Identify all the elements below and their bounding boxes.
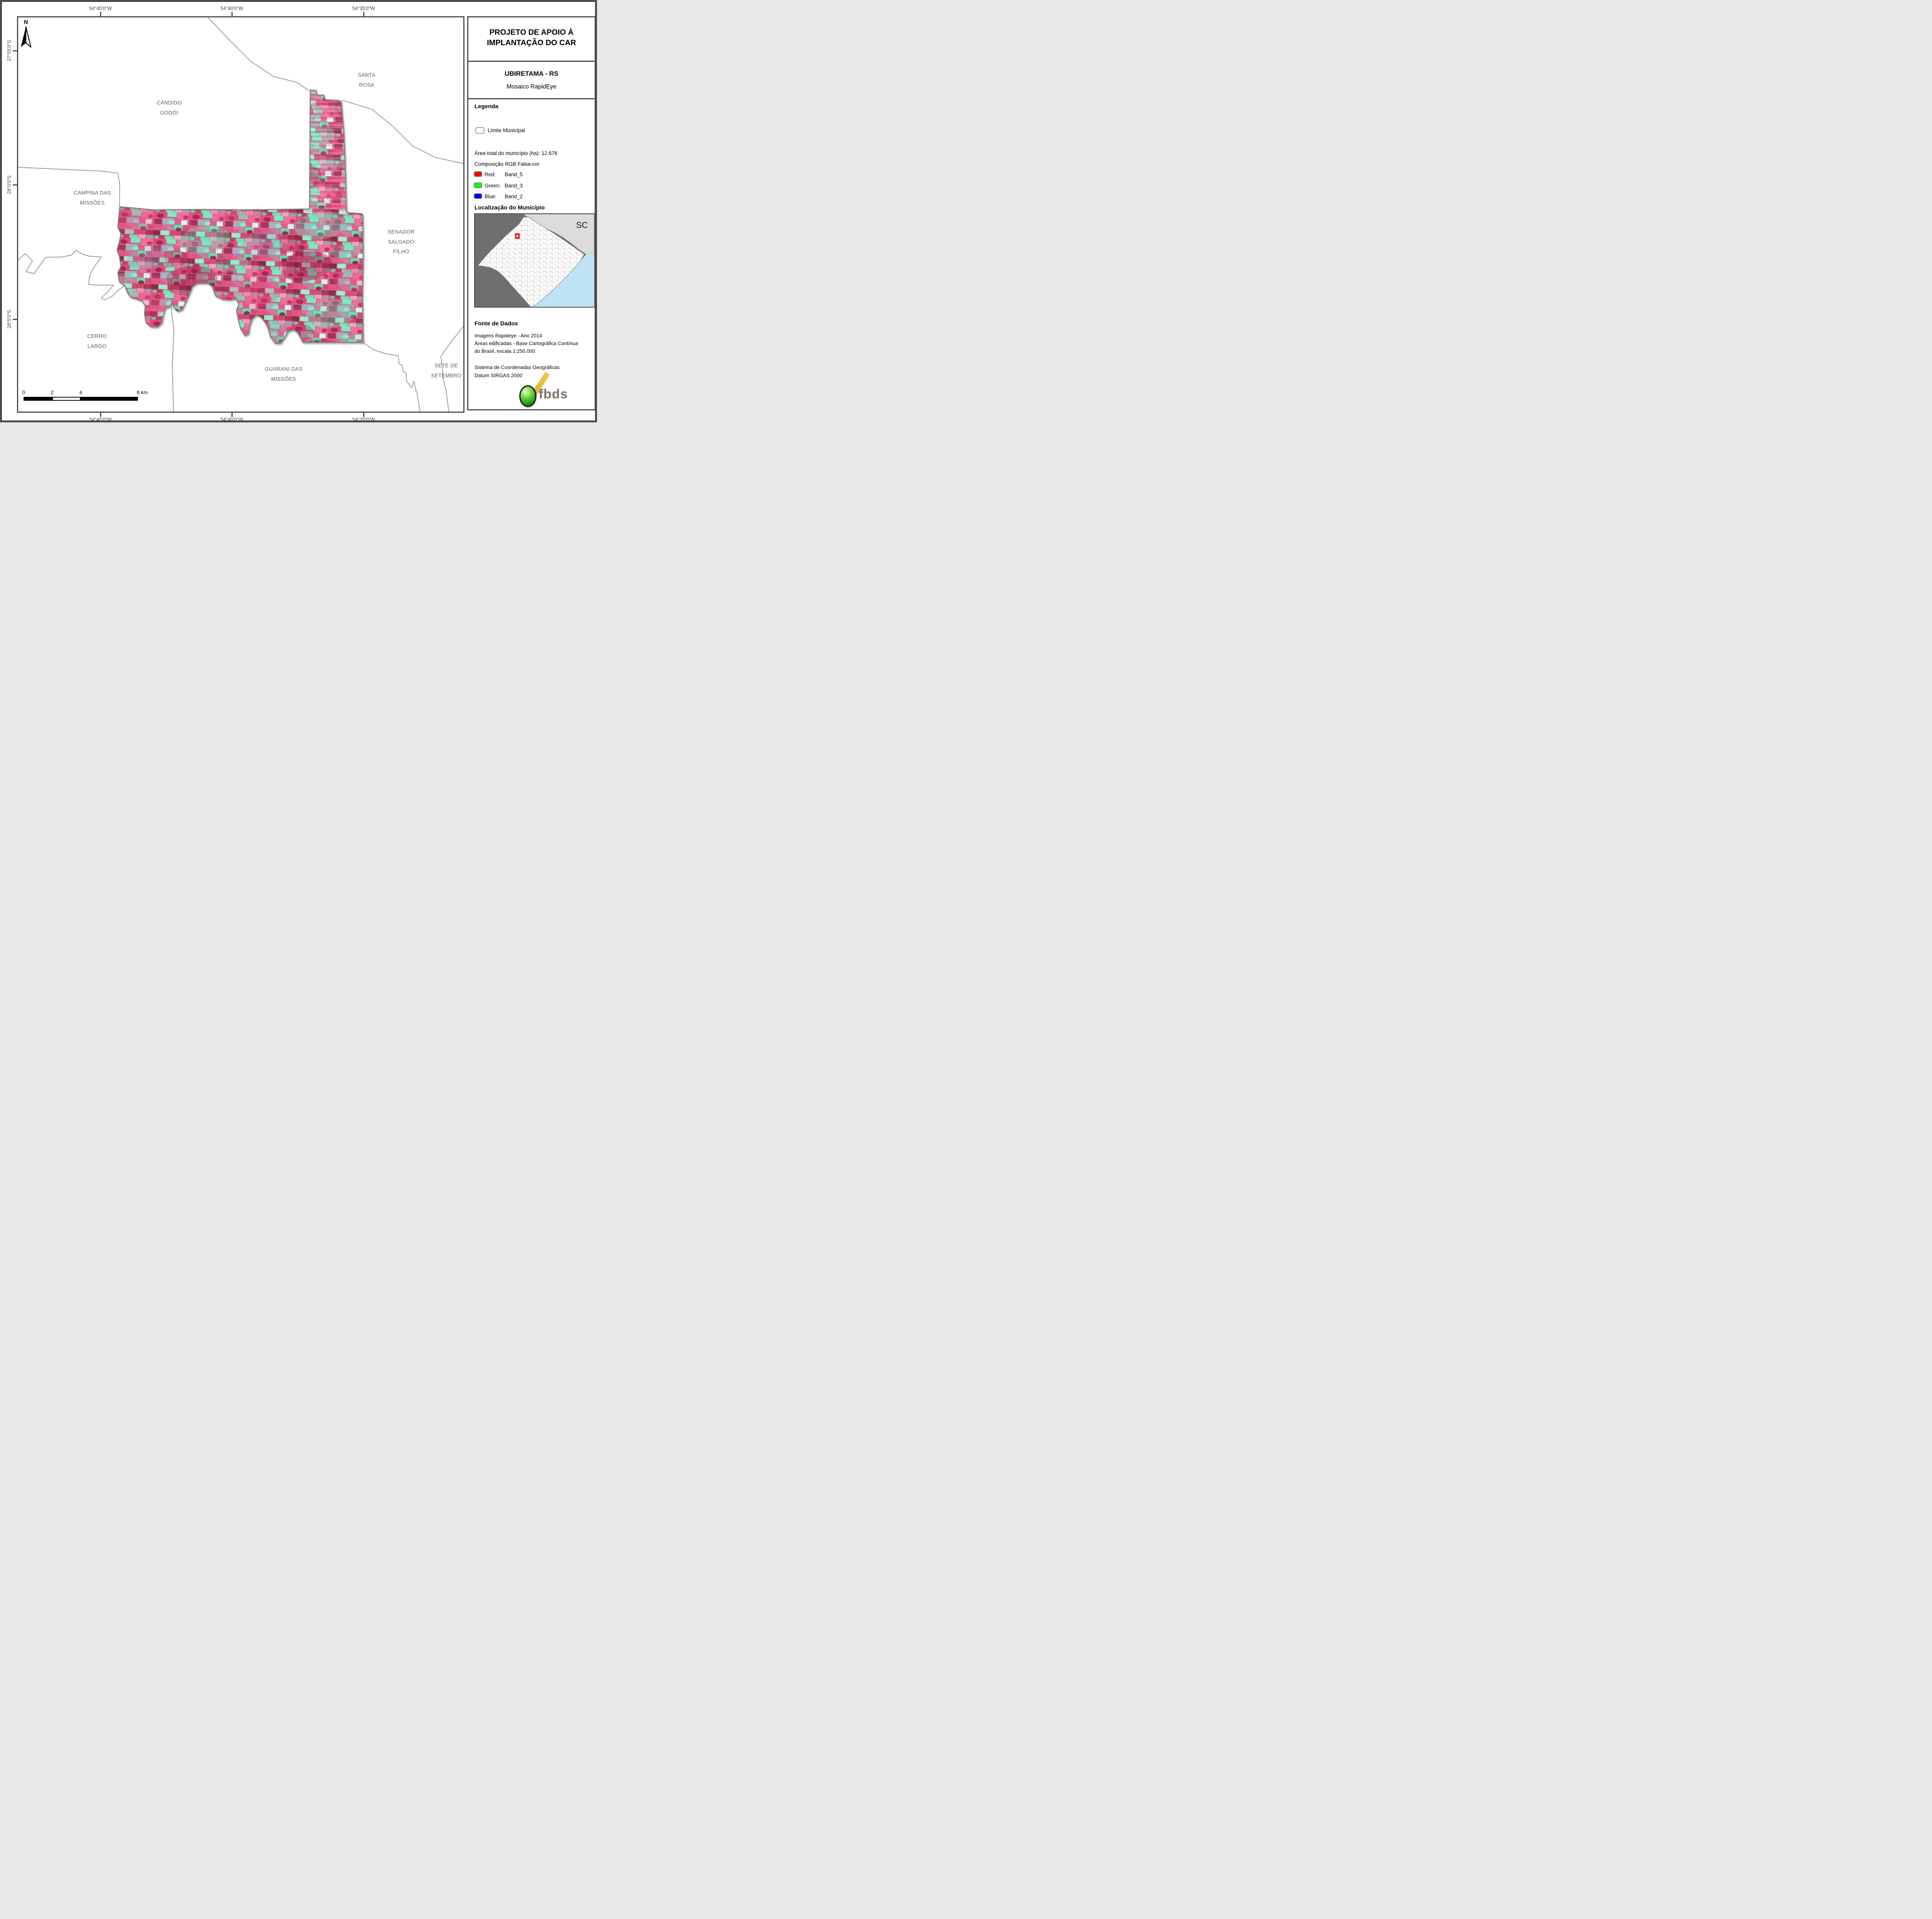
subtitle-box: UBIRETAMA - RS Mosaico RapidEye — [467, 61, 596, 99]
sc-state-label: SC — [576, 220, 588, 230]
title-box: PROJETO DE APOIO À IMPLANTAÇÃO DO CAR — [467, 16, 596, 62]
blue-band-row: Blue:Band_2 — [485, 194, 523, 199]
map-viewport — [17, 16, 464, 413]
tick-left-2 — [13, 184, 17, 185]
tick-top-1 — [100, 12, 101, 16]
map-label-santa-rosa: SANTAROSA — [358, 70, 376, 90]
fonte-heading: Fonte de Dados — [474, 320, 518, 327]
map-label-guarani-das-missoes: GUARANI DASMISSÕES — [265, 364, 302, 384]
blue-band-swatch — [474, 193, 482, 199]
scale-segment-3 — [81, 397, 138, 401]
fbds-logo: fbds — [514, 377, 591, 409]
fonte-line-3: do Brasil, escala 1:250.000 — [474, 347, 535, 355]
limite-municipal-label: Limite Municipal — [488, 128, 525, 133]
green-band-swatch — [474, 182, 482, 188]
fbds-logo-text: fbds — [539, 387, 568, 402]
map-label-cerro-largo: CERROLARGO — [87, 331, 107, 351]
map-sheet: CÂNDIDOGODÓI SANTAROSA CAMPINA DASMISSÕE… — [0, 0, 597, 422]
coord-left-2: 28°0'0"S — [7, 175, 12, 194]
coord-bottom-1: 54°45'0"W — [89, 417, 112, 422]
tick-left-3 — [13, 319, 17, 320]
coord-top-3: 54°35'0"W — [352, 6, 375, 11]
red-band-row: Red:Band_5 — [485, 172, 523, 177]
scale-label-4: 4 — [79, 390, 82, 395]
north-arrow: N — [19, 19, 33, 51]
scale-segment-2 — [52, 397, 81, 401]
map-label-campina-das-missoes: CAMPINA DASMISSÕES — [74, 188, 111, 208]
localizacao-heading: Localização do Município — [474, 204, 545, 211]
tick-bottom-3 — [363, 413, 364, 417]
scale-label-8km: 8 km — [137, 390, 148, 395]
map-canvas — [18, 17, 463, 412]
info-panel: PROJETO DE APOIO À IMPLANTAÇÃO DO CAR UB… — [467, 16, 596, 410]
green-band-row: Green:Band_3 — [485, 183, 523, 189]
area-total: Área total do município (ha): 12.676 — [474, 150, 558, 156]
composicao-rgb: Composição RGB Falsa-cor — [474, 161, 539, 167]
tick-top-3 — [363, 12, 364, 16]
legend-box: Legenda Limite Municipal Área total do m… — [467, 98, 596, 410]
scale-segment-1 — [24, 397, 52, 401]
coord-top-1: 54°45'0"W — [89, 6, 112, 11]
tick-left-1 — [13, 50, 17, 51]
tick-top-2 — [231, 12, 233, 16]
red-band-swatch — [474, 171, 482, 177]
municipality-name: UBIRETAMA - RS — [468, 62, 595, 78]
fonte-line-1: Imagens Rapideye - Ano 2014 — [474, 332, 542, 340]
tick-bottom-1 — [100, 413, 101, 417]
tick-bottom-2 — [231, 413, 233, 417]
north-arrow-icon — [19, 26, 33, 49]
coord-left-1: 27°55'0"S — [7, 40, 12, 61]
map-label-senador-salgado-filho: SENADORSALGADOFILHO — [388, 227, 415, 257]
coord-top-2: 54°40'0"W — [221, 6, 243, 11]
legend-heading: Legenda — [474, 103, 498, 110]
coord-bottom-2: 54°40'0"W — [221, 417, 243, 422]
scale-label-0: 0 — [22, 390, 25, 395]
product-name: Mosaico RapidEye — [468, 78, 595, 90]
municipality-mosaic — [115, 87, 366, 346]
map-label-candido-godoi: CÂNDIDOGODÓI — [156, 98, 182, 117]
scale-label-2: 2 — [51, 390, 53, 395]
locator-map: SC — [474, 213, 595, 308]
fbds-logo-globe-icon — [519, 385, 536, 407]
locator-canvas: SC — [475, 214, 594, 307]
fonte-line-2: Áreas edificadas - Base Cartográfica Con… — [474, 340, 578, 347]
scale-bar: 0 2 4 8 km — [24, 390, 147, 405]
coord-bottom-3: 54°35'0"W — [352, 417, 375, 422]
north-label: N — [19, 19, 33, 26]
coord-left-3: 28°5'0"S — [7, 310, 12, 328]
fonte-line-4: Sistema de Coordenadas Geográficas — [474, 364, 560, 371]
map-label-sete-de-setembro: SETE DESETEMBRO — [431, 361, 462, 380]
sheet-title: PROJETO DE APOIO À IMPLANTAÇÃO DO CAR — [468, 17, 595, 48]
limite-municipal-swatch — [475, 127, 485, 134]
